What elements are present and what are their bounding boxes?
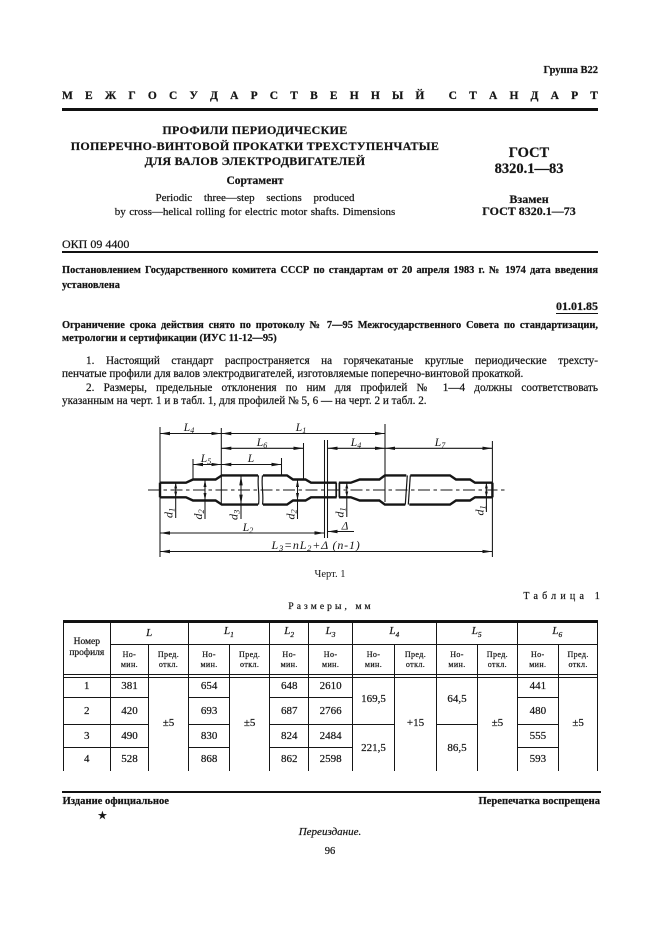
svg-text:d1: d1 (473, 505, 488, 515)
svg-text:L7: L7 (434, 437, 446, 450)
svg-text:d3: d3 (227, 510, 242, 520)
svg-text:Черт. 1: Черт. 1 (315, 569, 346, 580)
svg-text:L6: L6 (256, 437, 267, 450)
svg-text:d1: d1 (162, 508, 177, 518)
svg-text:d1: d1 (333, 507, 348, 517)
svg-text:L: L (247, 453, 254, 465)
svg-text:d2: d2 (284, 509, 299, 520)
svg-text:L2: L2 (242, 522, 253, 535)
svg-text:L1: L1 (295, 422, 306, 435)
svg-text:L4: L4 (183, 422, 194, 435)
svg-text:L5: L5 (200, 453, 211, 466)
svg-text:L4: L4 (350, 437, 361, 450)
svg-text:L3=nL2+Δ (n-1): L3=nL2+Δ (n-1) (270, 538, 360, 553)
svg-text:Δ: Δ (341, 521, 349, 533)
svg-text:d2: d2 (191, 509, 206, 520)
